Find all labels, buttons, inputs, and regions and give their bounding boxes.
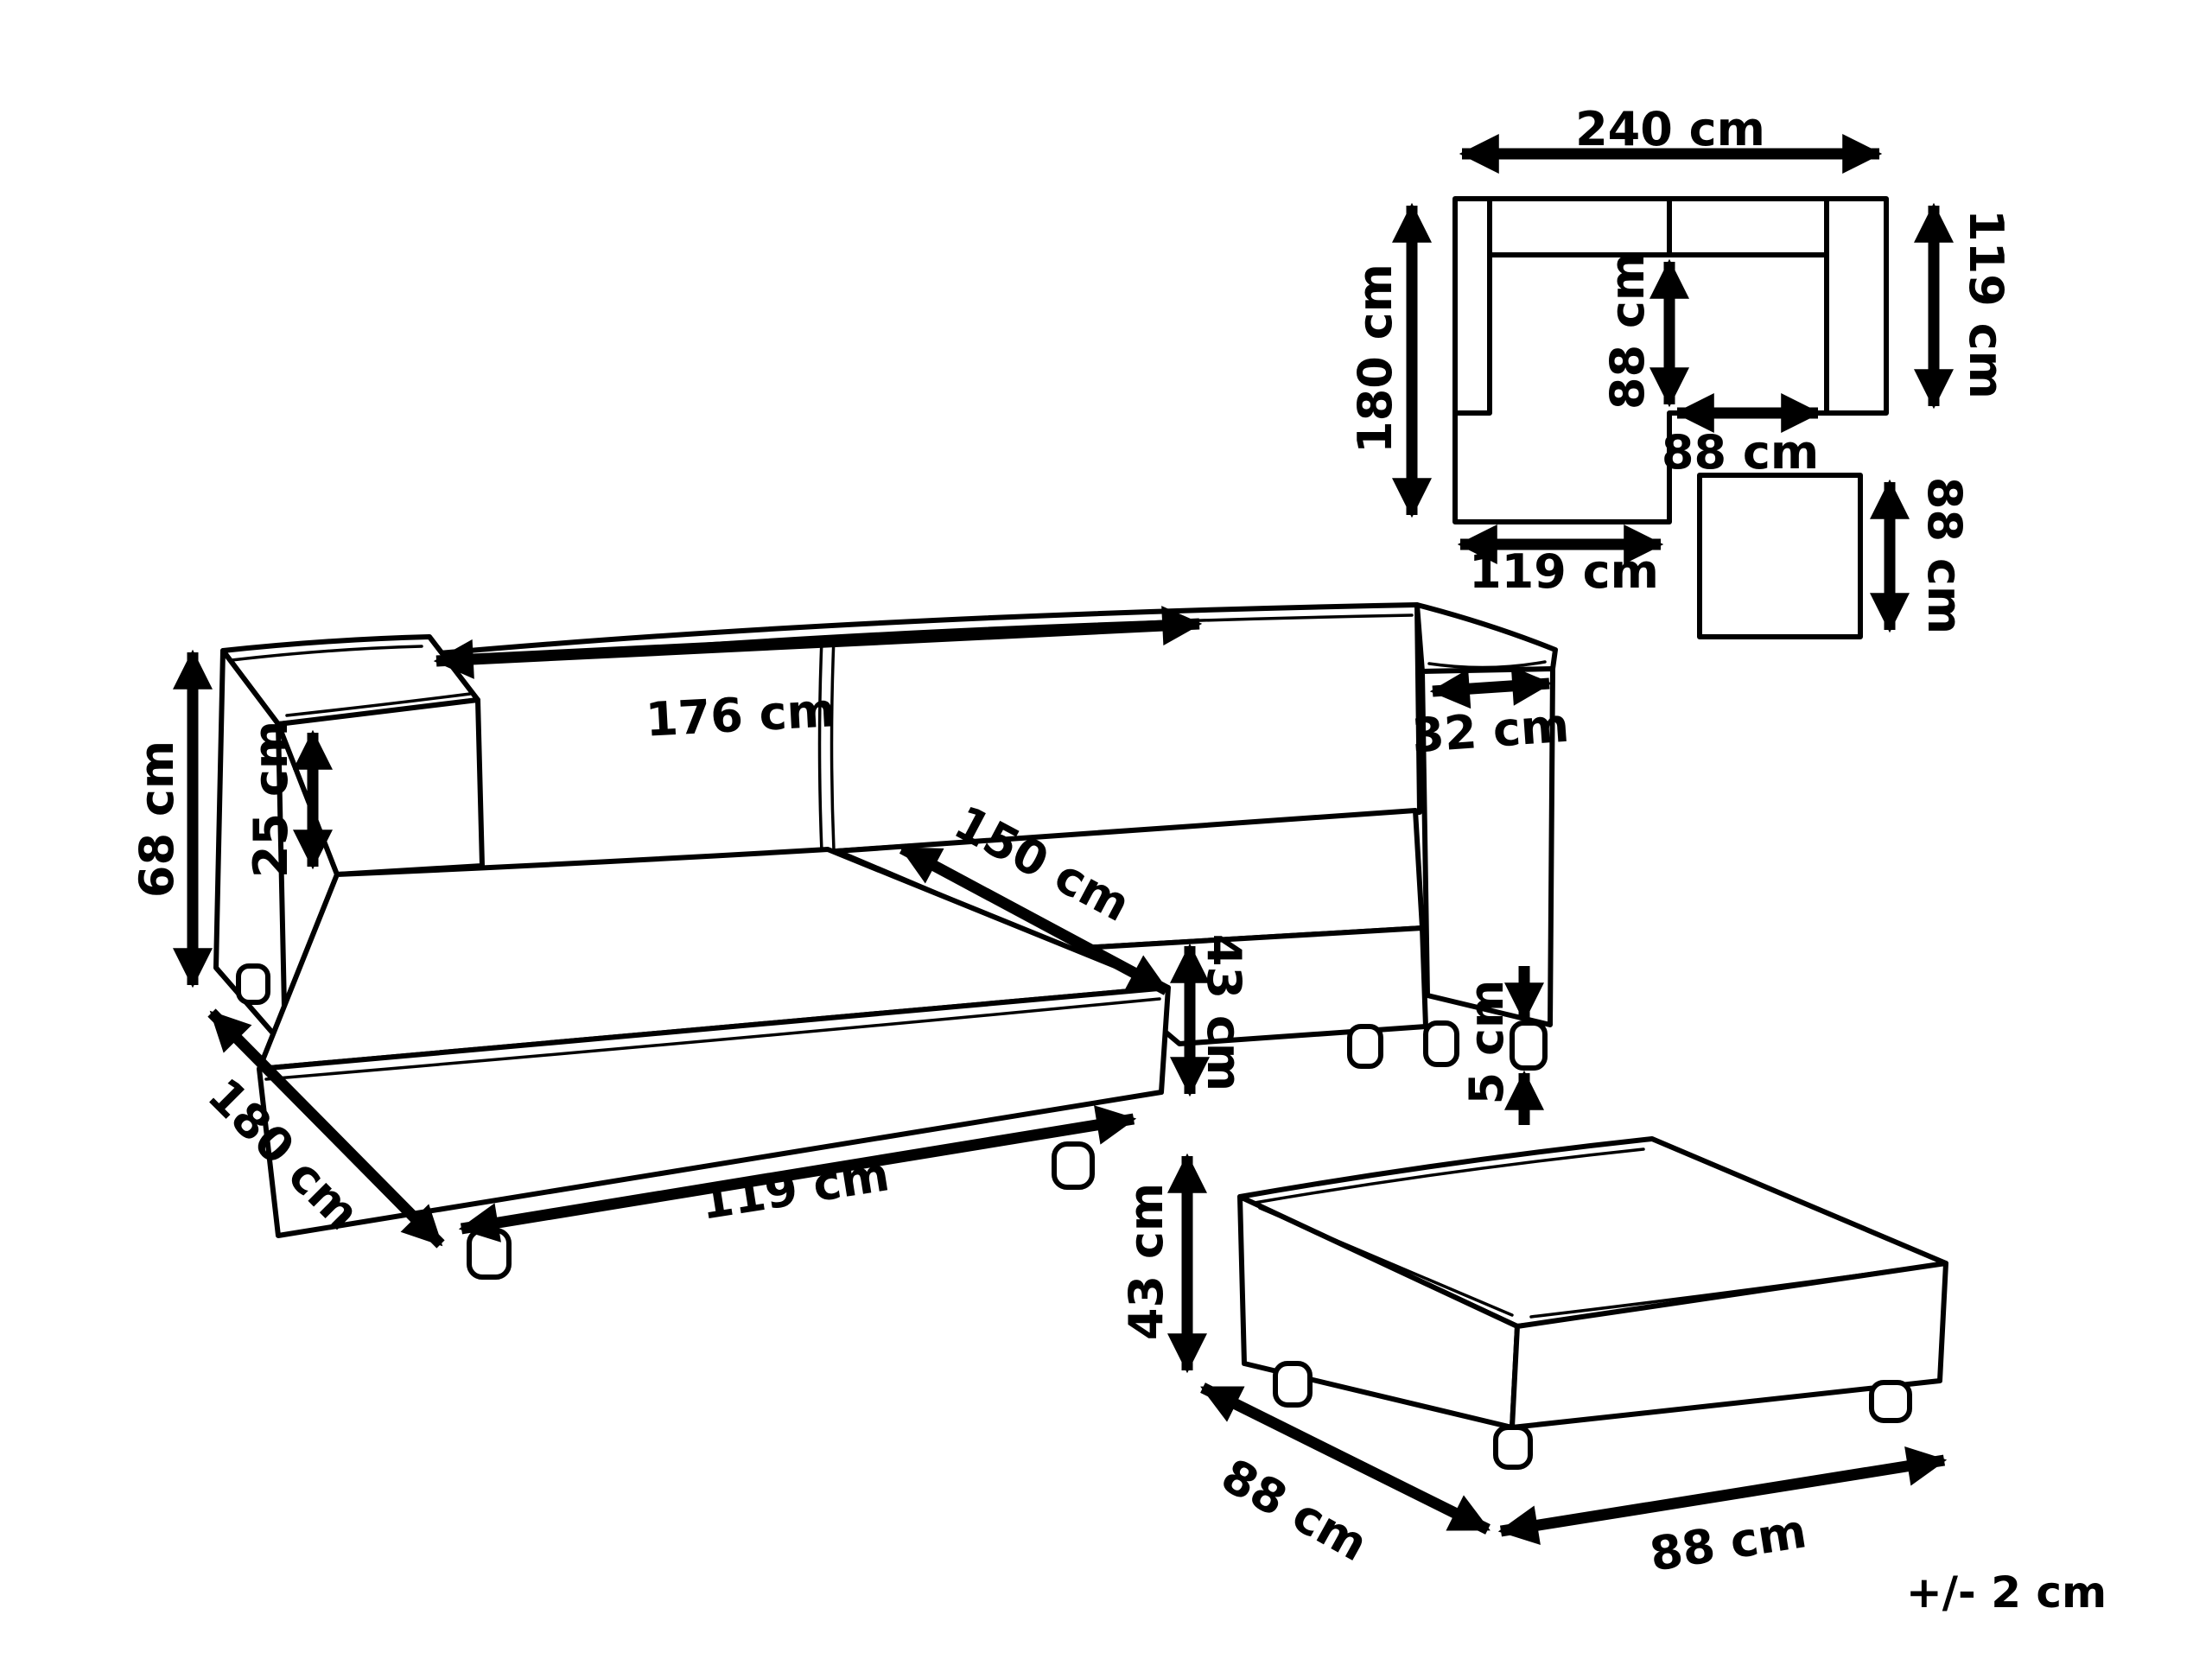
dim-sofa-back-width: 176 cm xyxy=(645,683,837,747)
sofa-leg xyxy=(1512,1023,1545,1068)
dim-plan-left-depth: 180 cm xyxy=(1348,264,1402,454)
dim-sofa-height: 68 cm xyxy=(130,741,184,898)
dim-plan-overall-width: 240 cm xyxy=(1575,102,1765,156)
ottoman-leg xyxy=(1496,1427,1530,1467)
dim-plan-right-depth: 119 cm xyxy=(1959,209,2013,399)
dim-ottoman-width: 88 cm xyxy=(1646,1503,1810,1582)
dim-plan-inner-width: 88 cm xyxy=(1662,425,1819,480)
sofa-leg xyxy=(1426,1023,1457,1065)
dim-sofa-armrest-width: 32 cm xyxy=(1410,698,1571,764)
sofa-leg xyxy=(1054,1144,1092,1187)
dim-ottoman-height: 43 cm xyxy=(1119,1183,1173,1340)
dim-sofa-seat-height: 43 cm xyxy=(1197,934,1251,1091)
dimension-diagram: 240 cm 180 cm 119 cm 88 cm 88 cm 119 cm … xyxy=(0,0,2212,1659)
sofa-leg xyxy=(238,966,268,1002)
dim-plan-ottoman-size: 88 cm xyxy=(1917,477,1972,634)
dim-sofa-leg-height: 5 cm xyxy=(1459,980,1514,1105)
dim-plan-chaise-width: 119 cm xyxy=(1469,544,1659,599)
sofa-leg xyxy=(469,1230,509,1277)
dim-sofa-backrest-height: 25 cm xyxy=(244,721,298,878)
tolerance-note: +/- 2 cm xyxy=(1906,1567,2107,1618)
dim-plan-inner-depth: 88 cm xyxy=(1600,252,1655,410)
plan-ottoman-square xyxy=(1700,475,1860,637)
ottoman-perspective-view: 43 cm 88 cm 88 cm xyxy=(1119,1139,1946,1582)
ottoman-leg xyxy=(1872,1382,1910,1421)
sofa-leg xyxy=(1350,1027,1381,1066)
diagram-canvas: 240 cm 180 cm 119 cm 88 cm 88 cm 119 cm … xyxy=(0,0,2212,1659)
ottoman-leg xyxy=(1275,1363,1310,1405)
sofa-armrest-width-arrow xyxy=(1433,683,1549,691)
plan-view: 240 cm 180 cm 119 cm 88 cm 88 cm 119 cm … xyxy=(1348,102,2013,637)
